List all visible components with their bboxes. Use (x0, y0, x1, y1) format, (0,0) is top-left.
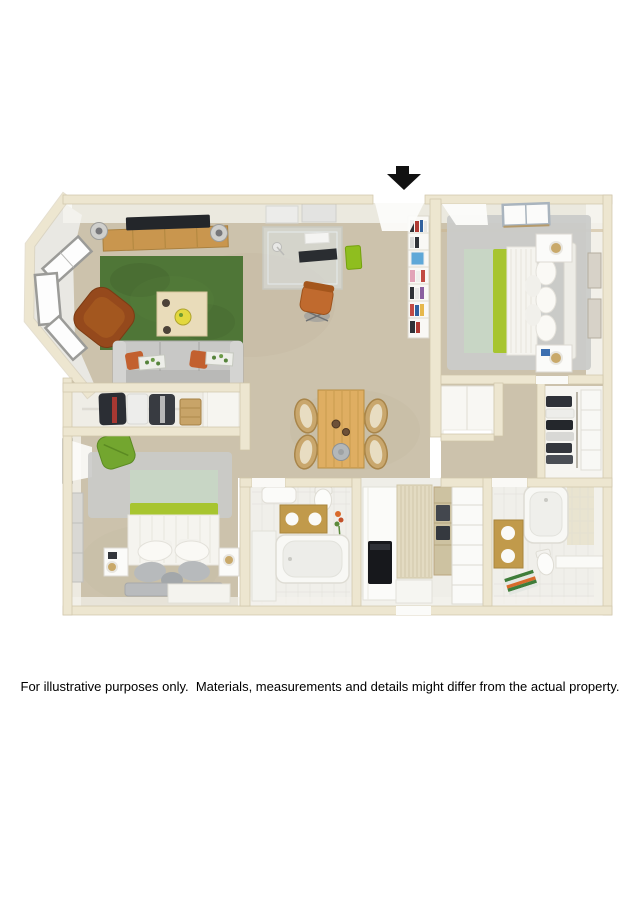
decor-plate-leaf (179, 313, 183, 317)
skylight-mullion (526, 204, 527, 225)
sofa-tray (206, 351, 234, 366)
book (416, 271, 420, 282)
living-closet-wall (63, 383, 248, 392)
flowers (335, 511, 341, 517)
master-bed-sage-blanket (464, 249, 495, 353)
speaker-right-cone (216, 230, 223, 237)
book (420, 304, 424, 316)
bed2-sage-blanket (130, 470, 218, 506)
book (410, 237, 414, 248)
bathroom1-top-wall (285, 478, 352, 487)
book (410, 287, 414, 299)
vanity-sink (501, 549, 515, 563)
table-bowl (343, 429, 350, 436)
master-bedroom (447, 215, 601, 372)
tray (139, 355, 166, 370)
shelf-unit (302, 204, 336, 222)
item-on-nightstand (108, 552, 117, 559)
bathroom1-left-wall (240, 478, 250, 606)
tv-console (103, 226, 229, 251)
book (410, 321, 415, 333)
book (420, 287, 424, 299)
hanging-clothes-gray (160, 396, 165, 423)
book (416, 322, 420, 333)
vanity-sink (309, 513, 322, 526)
storage-basket (180, 399, 201, 425)
sofa-armrest (113, 341, 126, 388)
flowers (335, 522, 340, 527)
right-wall (603, 195, 612, 615)
hall-closet-bottom-wall (441, 434, 494, 441)
bedroom2-right-wall (240, 383, 250, 450)
book (415, 288, 419, 299)
half-wall-ledge (556, 556, 603, 568)
hanging-clothes-dark (546, 443, 572, 453)
book (424, 221, 427, 232)
disclaimer-text: For illustrative purposes only. Material… (0, 679, 640, 695)
arrow-head (387, 174, 421, 190)
skylight-window (503, 203, 550, 227)
bathroom1-right-wall (352, 478, 361, 606)
tile-wall-band (567, 487, 594, 545)
floor-mat (168, 584, 230, 603)
decor-bowl (162, 299, 170, 307)
hanging-clothes-dark (546, 420, 573, 430)
speaker-left-cone (96, 228, 103, 235)
floorplan-page: For illustrative purposes only. Material… (0, 0, 640, 905)
sink-cabinet (262, 487, 296, 503)
wall-mirror-panel (72, 493, 83, 582)
bathroom1-top-wall-corner (240, 478, 252, 487)
bottom-wall (63, 606, 612, 615)
side-counter (252, 531, 276, 601)
door-mat (396, 580, 432, 603)
wall-art (588, 299, 601, 338)
decor-bowl (163, 326, 171, 334)
bathroom2-doorway (492, 478, 527, 487)
table-bowl (332, 420, 340, 428)
bathroom1-doorway (252, 478, 285, 487)
bed-pillow (525, 304, 541, 326)
hall-closet-wall (494, 383, 503, 436)
office-chair (299, 281, 335, 316)
louvered-doors (397, 485, 432, 578)
bathtub-drain (544, 498, 548, 502)
tray (206, 351, 234, 366)
book (420, 220, 423, 232)
closet-divider (203, 391, 208, 427)
hanging-clothes-dark (546, 396, 572, 407)
hanging-clothes-red (112, 397, 117, 423)
bathtub-drain (288, 557, 292, 561)
closet-bedroom2-wall (63, 427, 248, 436)
framed-photo (411, 252, 424, 265)
master-doorway (536, 376, 568, 384)
table-lamp (550, 242, 562, 254)
bottom-wall-face (63, 597, 612, 606)
floor-plan-rendering (0, 0, 640, 905)
book (415, 305, 419, 316)
master-bottom-wall (568, 375, 603, 384)
book (410, 270, 415, 282)
hanging-clothes-dark (546, 455, 573, 464)
flowers (339, 518, 344, 523)
living-master-wall (430, 199, 441, 437)
top-wall-left (63, 195, 373, 204)
folded-towels (436, 505, 450, 521)
vanity-sink (286, 513, 299, 526)
book (415, 221, 419, 232)
laundry-hall (363, 485, 483, 604)
paper (305, 232, 329, 243)
patio-doorway (396, 606, 431, 615)
sofa-tray (139, 355, 166, 370)
washer-panel (370, 544, 390, 550)
folded-towels (436, 526, 450, 540)
decor-plate (175, 309, 191, 325)
hanging-clothes-white (546, 409, 574, 418)
book (415, 237, 419, 248)
top-wall-right (425, 195, 612, 204)
shelf-unit (266, 206, 298, 223)
table-lamp (224, 555, 234, 565)
bathroom2-left-wall (483, 478, 492, 606)
hanging-clothes-white (127, 394, 148, 424)
vanity-sink (501, 526, 515, 540)
green-tablet (345, 245, 362, 269)
master-bottom-wall (441, 375, 536, 384)
closet-shelf-bay (208, 391, 238, 427)
entrance-arrow (387, 166, 421, 190)
left-wall (63, 378, 72, 615)
table-lamp (550, 352, 562, 364)
wall-art (588, 253, 601, 288)
hall-bottom-wall (527, 478, 612, 487)
book-on-nightstand (541, 349, 550, 356)
centerpiece-lid (338, 449, 344, 455)
hanging-clothes-gray (546, 432, 574, 441)
book (421, 270, 425, 282)
walkin-closet-wall (537, 383, 545, 478)
dining-area (292, 390, 390, 471)
bed-pillow (525, 275, 541, 297)
book (410, 304, 414, 316)
bathroom2-right-wall-face (594, 487, 603, 606)
hall-closet (82, 391, 238, 427)
table-lamp (107, 562, 117, 572)
